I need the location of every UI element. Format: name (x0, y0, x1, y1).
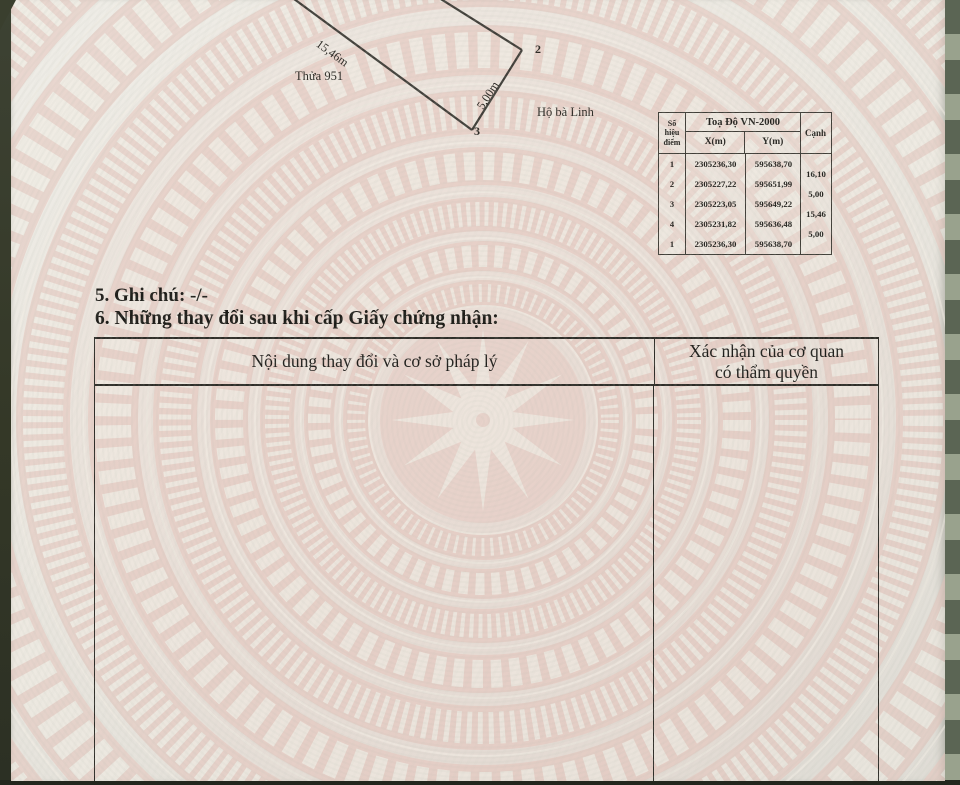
coord-row: 1 2305236,30 595638,70 (659, 154, 801, 174)
coordinate-table-body: 1 2305236,30 595638,70 2 2305227,22 5956… (659, 154, 831, 254)
coordinate-table: Số hiệu điểm Toạ Độ VN-2000 X(m) Y(m) Cạ… (658, 112, 832, 255)
vertex-label-2: 2 (535, 42, 541, 57)
col-group-vn2000: Toạ Độ VN-2000 X(m) Y(m) (686, 113, 801, 153)
section-6-heading: 6. Những thay đổi sau khi cấp Giấy chứng… (95, 308, 499, 330)
coord-y: 595638,70 (746, 234, 801, 254)
changes-table-body (94, 386, 879, 781)
section-5-note: 5. Ghi chú: -/- (95, 285, 208, 307)
photo-scene: 15,46m Thửa 951 5,00m Hộ bà Linh 2 3 Số … (0, 0, 960, 785)
coord-x: 2305236,30 (686, 234, 746, 254)
col-header-point-number: Số hiệu điểm (659, 113, 686, 153)
coord-x: 2305236,30 (686, 154, 746, 174)
coord-y: 595636,48 (746, 214, 801, 234)
boundary-line-upper (436, 0, 522, 50)
point-id: 1 (659, 154, 686, 174)
changes-table-header: Nội dung thay đổi và cơ sở pháp lý Xác n… (94, 337, 879, 386)
edge-length: 15,46 (801, 205, 831, 223)
changes-col2-header-line1: Xác nhận của cơ quan (689, 341, 844, 362)
background-blind-stripes (945, 0, 960, 785)
point-id: 2 (659, 174, 686, 194)
coord-row: 1 2305236,30 595638,70 (659, 234, 801, 254)
coord-row: 2 2305227,22 595651,99 (659, 174, 801, 194)
changes-content-cell (94, 386, 654, 781)
col-header-x: X(m) (686, 132, 745, 153)
edge-length: 5,00 (801, 185, 831, 203)
neighbor-label: Hộ bà Linh (537, 105, 594, 120)
edge-length-label-long: 15,46m (313, 37, 351, 70)
edge-length: 5,00 (801, 225, 831, 243)
edge-length-column: 16,10 5,00 15,46 5,00 (800, 154, 831, 254)
changes-confirmation-cell (654, 386, 879, 781)
coord-row: 4 2305231,82 595636,48 (659, 214, 801, 234)
col-header-vn2000: Toạ Độ VN-2000 (686, 113, 800, 132)
changes-col2-header-line2: có thẩm quyền (715, 362, 818, 383)
edge-length-label-short: 5,00m (474, 79, 503, 113)
col-header-y: Y(m) (745, 132, 800, 153)
certificate-page: 15,46m Thửa 951 5,00m Hộ bà Linh 2 3 Số … (11, 0, 945, 781)
point-id: 1 (659, 234, 686, 254)
changes-col2-header: Xác nhận của cơ quan có thẩm quyền (655, 339, 878, 384)
coord-y: 595638,70 (746, 154, 801, 174)
changes-table: Nội dung thay đổi và cơ sở pháp lý Xác n… (94, 337, 879, 781)
coord-row: 3 2305223,05 595649,22 (659, 194, 801, 214)
coord-y: 595651,99 (746, 174, 801, 194)
coordinate-table-header: Số hiệu điểm Toạ Độ VN-2000 X(m) Y(m) Cạ… (659, 113, 831, 154)
point-id: 4 (659, 214, 686, 234)
coord-x: 2305227,22 (686, 174, 746, 194)
coord-x: 2305223,05 (686, 194, 746, 214)
changes-col1-header: Nội dung thay đổi và cơ sở pháp lý (95, 339, 655, 384)
edge-length: 16,10 (801, 165, 831, 183)
coord-y: 595649,22 (746, 194, 801, 214)
point-id: 3 (659, 194, 686, 214)
boundary-line-15-46m (290, 0, 472, 130)
col-header-edge: Cạnh (801, 113, 830, 153)
parcel-number-label: Thửa 951 (295, 69, 343, 84)
coord-x: 2305231,82 (686, 214, 746, 234)
vertex-label-3: 3 (474, 124, 480, 139)
